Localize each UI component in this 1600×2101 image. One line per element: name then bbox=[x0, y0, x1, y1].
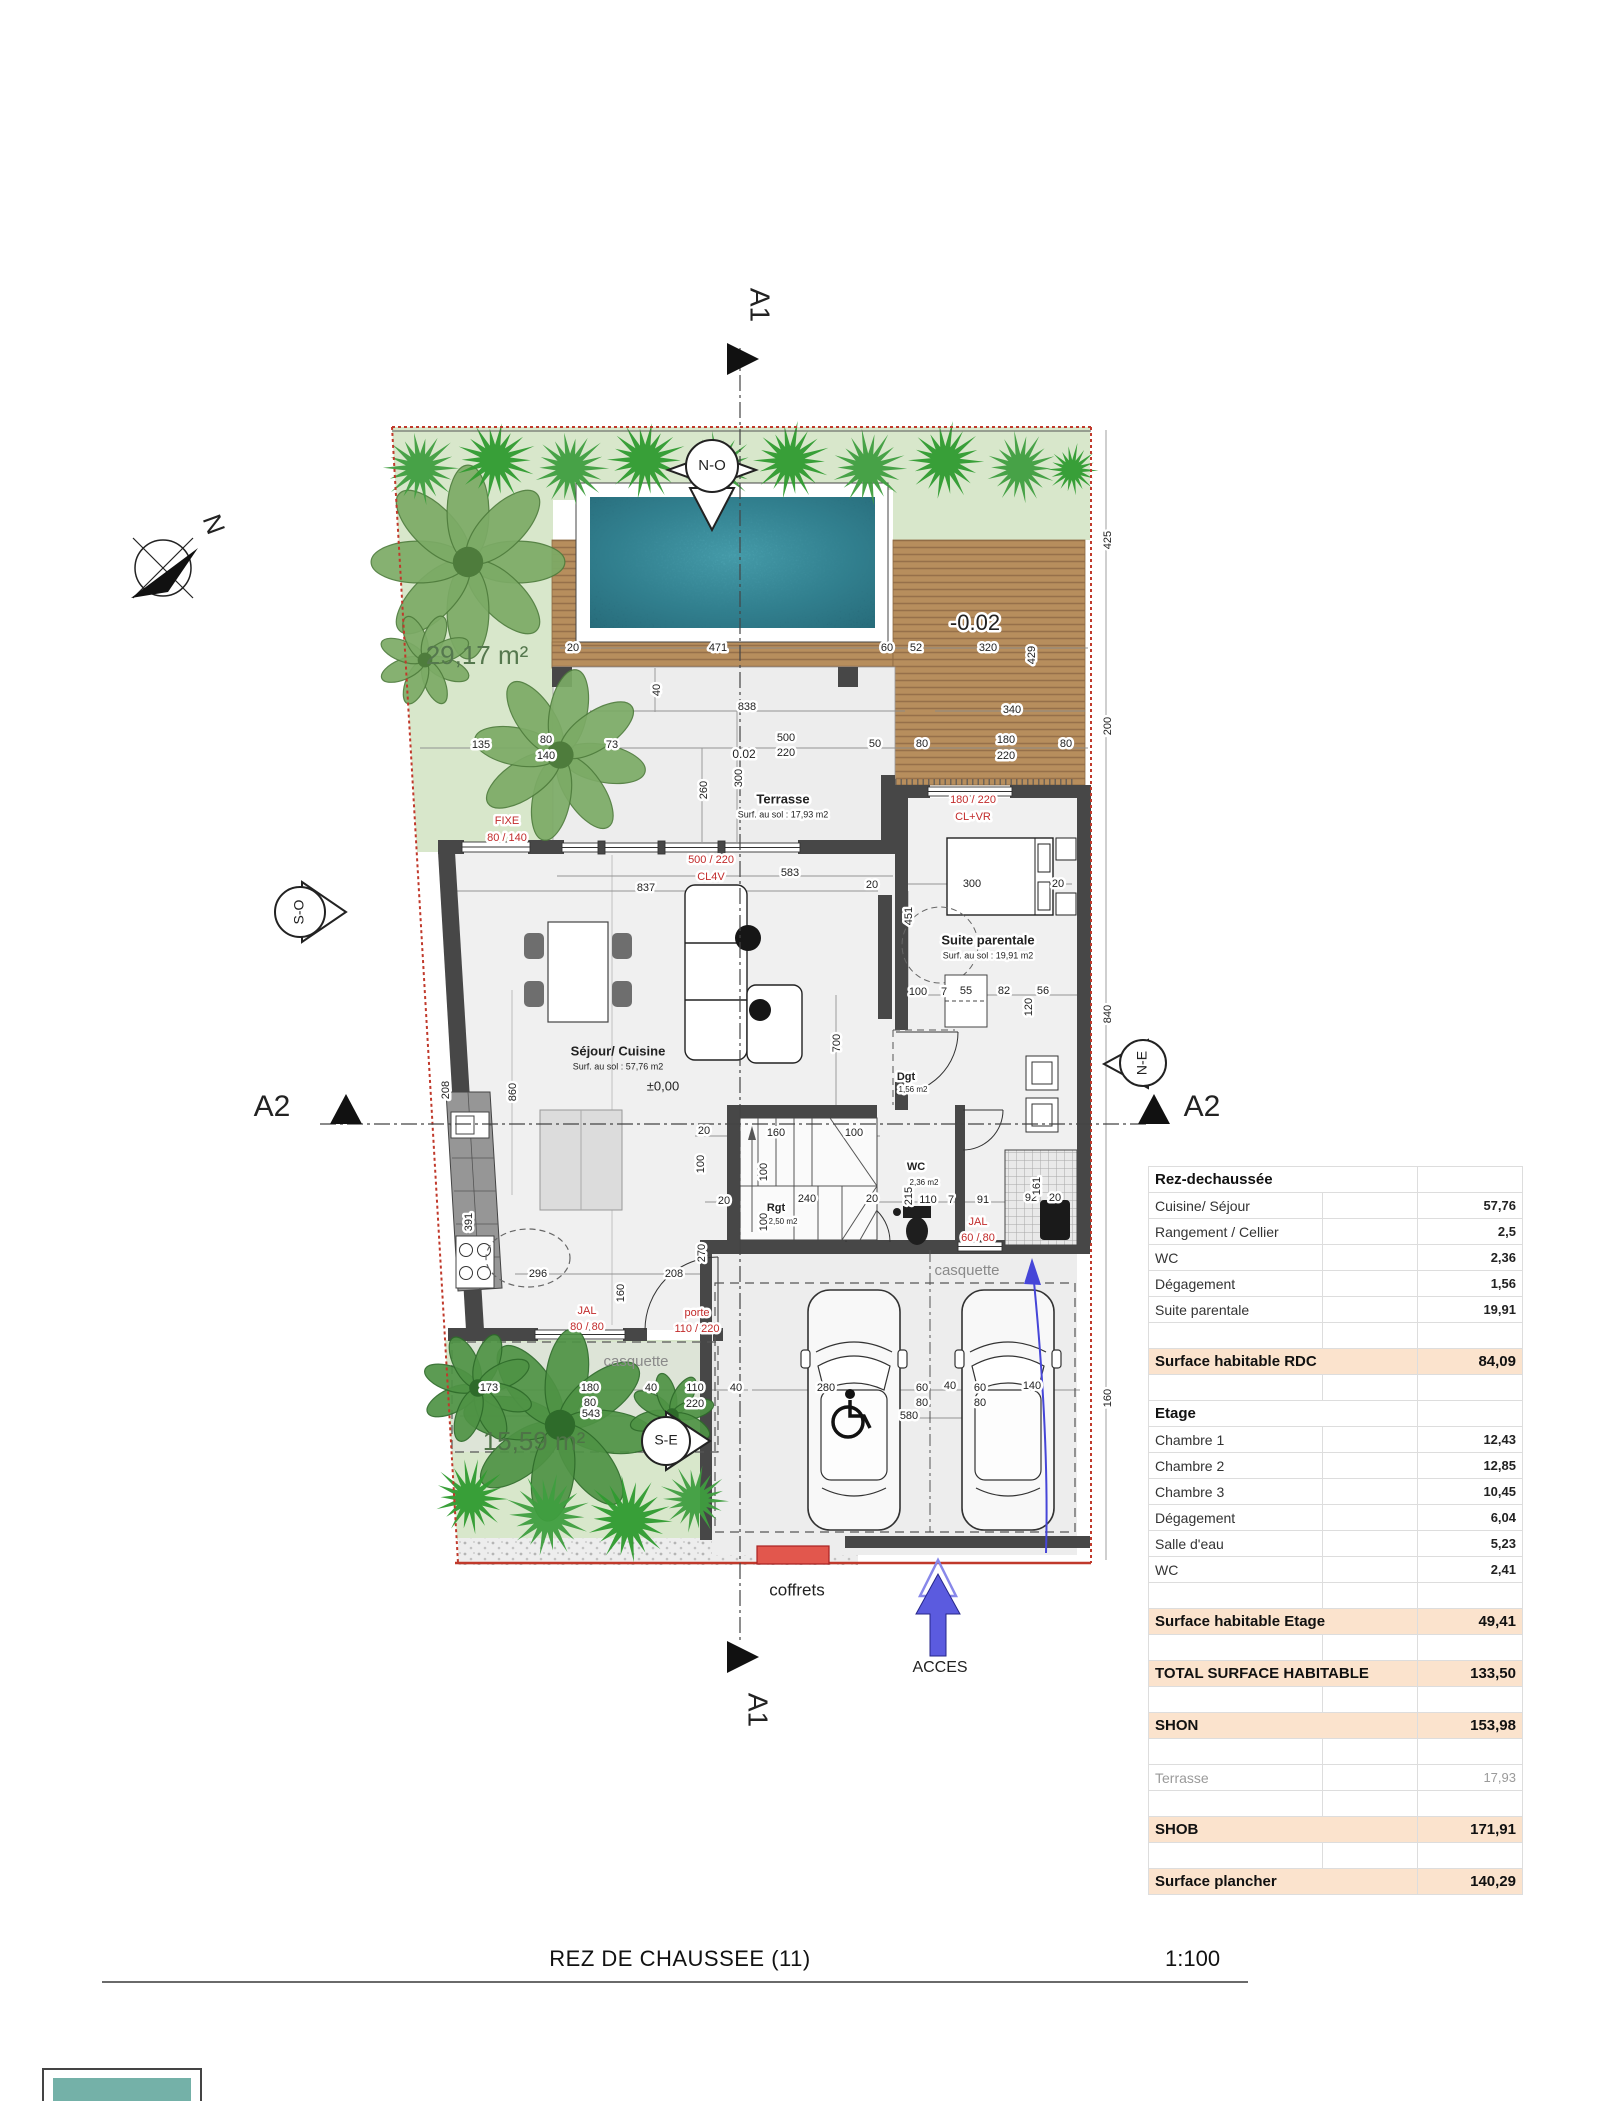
table-label: SHOB bbox=[1149, 1817, 1418, 1843]
table-label bbox=[1323, 1739, 1418, 1765]
plan-label: 160 bbox=[1102, 1389, 1114, 1407]
plan-label: 20 bbox=[1052, 878, 1064, 890]
table-label bbox=[1323, 1583, 1418, 1609]
plan-label: 860 bbox=[507, 1083, 519, 1101]
plan-label: 80 bbox=[916, 738, 928, 750]
plan-label: 91 bbox=[977, 1194, 989, 1206]
table-label: Chambre 2 bbox=[1149, 1453, 1323, 1479]
table-label bbox=[1323, 1557, 1418, 1583]
table-value: 1,56 bbox=[1418, 1271, 1523, 1297]
table-label bbox=[1323, 1453, 1418, 1479]
plan-label: 200 bbox=[1102, 717, 1114, 735]
table-value: 6,04 bbox=[1418, 1505, 1523, 1531]
plan-label: 320 bbox=[979, 642, 997, 654]
table-value: 133,50 bbox=[1418, 1661, 1523, 1687]
plan-label: 500 / 220 bbox=[688, 854, 734, 866]
plan-label: 300 bbox=[963, 878, 981, 890]
plan-label: 7 bbox=[941, 986, 947, 998]
access-arrow bbox=[916, 1574, 960, 1656]
plan-label: 180 / 220 bbox=[950, 794, 996, 806]
table-value: 171,91 bbox=[1418, 1817, 1523, 1843]
table-row: Chambre 212,85 bbox=[1149, 1453, 1523, 1479]
table-label: Chambre 1 bbox=[1149, 1427, 1323, 1453]
table-label bbox=[1149, 1739, 1323, 1765]
table-label bbox=[1149, 1635, 1323, 1661]
sheet-scale: 1:100 bbox=[1165, 1946, 1255, 1972]
plan-label: 50 bbox=[869, 738, 881, 750]
plan-label: Terrasse bbox=[756, 791, 809, 806]
compass-icon bbox=[131, 538, 198, 598]
table-label: Chambre 3 bbox=[1149, 1479, 1323, 1505]
plan-label: 425 bbox=[1102, 531, 1114, 549]
table-label: Surface plancher bbox=[1149, 1869, 1418, 1895]
table-row bbox=[1149, 1687, 1523, 1713]
table-row: Suite parentale19,91 bbox=[1149, 1297, 1523, 1323]
table-row bbox=[1149, 1323, 1523, 1349]
plan-label: 1,56 m2 bbox=[899, 1085, 928, 1094]
table-label bbox=[1323, 1245, 1418, 1271]
table-label bbox=[1418, 1583, 1523, 1609]
plan-label: 2,50 m2 bbox=[769, 1217, 798, 1226]
table-label: Dégagement bbox=[1149, 1271, 1323, 1297]
sheet-title: REZ DE CHAUSSEE (11) bbox=[380, 1946, 980, 1972]
plan-label: A1 bbox=[745, 288, 776, 322]
table-value: 17,93 bbox=[1418, 1765, 1523, 1791]
table-label: Rez-dechaussée bbox=[1149, 1167, 1418, 1193]
plan-label: A1 bbox=[743, 1693, 774, 1727]
tree-center bbox=[453, 547, 483, 577]
plan-label: 838 bbox=[738, 701, 756, 713]
table-row: WC2,41 bbox=[1149, 1557, 1523, 1583]
plan-label: 100 bbox=[695, 1155, 707, 1173]
plan-label: Rgt bbox=[767, 1202, 786, 1214]
table-value: 2,5 bbox=[1418, 1219, 1523, 1245]
plan-label: 40 bbox=[651, 684, 663, 696]
plan-label: 20 bbox=[698, 1125, 710, 1137]
table-value: 5,23 bbox=[1418, 1531, 1523, 1557]
table-row: TOTAL SURFACE HABITABLE133,50 bbox=[1149, 1661, 1523, 1687]
plan-label: 56 bbox=[1037, 985, 1049, 997]
plan-label: 20 bbox=[866, 879, 878, 891]
table-label: Terrasse bbox=[1149, 1765, 1323, 1791]
plan-label: 110 / 220 bbox=[674, 1323, 719, 1335]
plan-sheet: A1A1A2A2NN-OS-ON-ES-ETerrasseSurf. au so… bbox=[0, 0, 1600, 2101]
table-label bbox=[1323, 1479, 1418, 1505]
table-row: SHOB171,91 bbox=[1149, 1817, 1523, 1843]
plan-label: porte bbox=[684, 1307, 709, 1319]
plan-label: 583 bbox=[781, 867, 799, 879]
table-label bbox=[1418, 1323, 1523, 1349]
plan-label: 82 bbox=[998, 985, 1010, 997]
table-value: 57,76 bbox=[1418, 1193, 1523, 1219]
table-label bbox=[1323, 1193, 1418, 1219]
plant-pot bbox=[735, 925, 761, 951]
plan-label: WC bbox=[907, 1161, 925, 1173]
plan-label: 220 bbox=[686, 1398, 704, 1410]
plant-pot bbox=[749, 999, 771, 1021]
plan-label: CL4V bbox=[697, 871, 725, 883]
plan-label: N bbox=[197, 510, 232, 538]
table-label bbox=[1418, 1843, 1523, 1869]
plan-label: 208 bbox=[440, 1081, 452, 1099]
plan-label: JAL bbox=[969, 1216, 988, 1228]
plan-label: 300 bbox=[733, 769, 745, 787]
plan-label: 161 bbox=[1031, 1177, 1043, 1195]
table-row: Rangement / Cellier2,5 bbox=[1149, 1219, 1523, 1245]
plan-label: 220 bbox=[997, 750, 1015, 762]
table-label: Rangement / Cellier bbox=[1149, 1219, 1323, 1245]
plan-label: A2 bbox=[254, 1090, 291, 1123]
table-label: Surface habitable RDC bbox=[1149, 1349, 1418, 1375]
table-label: Suite parentale bbox=[1149, 1297, 1323, 1323]
plan-label: 270 bbox=[696, 1244, 708, 1262]
table-label bbox=[1418, 1739, 1523, 1765]
plan-label: 80 / 80 bbox=[570, 1321, 604, 1333]
company-logo bbox=[42, 2068, 202, 2101]
plan-label: 471 bbox=[709, 642, 727, 654]
plan-label: 40 bbox=[944, 1380, 956, 1392]
table-value: 2,41 bbox=[1418, 1557, 1523, 1583]
plan-label: 52 bbox=[910, 642, 922, 654]
table-label bbox=[1323, 1687, 1418, 1713]
marker-so-icon bbox=[275, 882, 346, 942]
plan-label: 29,17 m² bbox=[426, 640, 529, 670]
table-row: Salle d'eau5,23 bbox=[1149, 1531, 1523, 1557]
plan-label: 7 bbox=[948, 1194, 954, 1206]
table-value: 140,29 bbox=[1418, 1869, 1523, 1895]
table-value: 10,45 bbox=[1418, 1479, 1523, 1505]
table-label: Dégagement bbox=[1149, 1505, 1323, 1531]
plan-label: 40 bbox=[730, 1382, 742, 1394]
table-value: 12,43 bbox=[1418, 1427, 1523, 1453]
plan-label: 280 bbox=[817, 1382, 835, 1394]
table-label bbox=[1323, 1635, 1418, 1661]
pool bbox=[576, 483, 888, 642]
plan-label: 135 bbox=[472, 739, 490, 751]
table-row: Terrasse17,93 bbox=[1149, 1765, 1523, 1791]
plan-label: 40 bbox=[645, 1382, 657, 1394]
plan-label: A2 bbox=[1184, 1090, 1221, 1123]
plan-label: 215 bbox=[903, 1187, 915, 1205]
plan-label: 160 bbox=[767, 1127, 785, 1139]
table-label bbox=[1323, 1427, 1418, 1453]
plan-label: 208 bbox=[665, 1268, 683, 1280]
coffrets-box bbox=[757, 1546, 829, 1564]
table-label bbox=[1323, 1297, 1418, 1323]
plan-label: 543 bbox=[582, 1408, 600, 1420]
table-label bbox=[1418, 1791, 1523, 1817]
plan-label: 20 bbox=[567, 642, 579, 654]
shower-fixture bbox=[1040, 1200, 1070, 1240]
table-value bbox=[1418, 1401, 1523, 1427]
table-label bbox=[1323, 1791, 1418, 1817]
plan-label: 100 bbox=[758, 1163, 770, 1181]
plan-label: 15,59 m² bbox=[483, 1426, 586, 1456]
table-row: Dégagement1,56 bbox=[1149, 1271, 1523, 1297]
table-label bbox=[1323, 1843, 1418, 1869]
plan-label: CL+VR bbox=[955, 811, 991, 823]
table-label bbox=[1418, 1375, 1523, 1401]
plan-label: ±0,00 bbox=[647, 1078, 679, 1093]
plan-label: 110 bbox=[919, 1194, 937, 1206]
plan-label: 140 bbox=[537, 750, 555, 762]
plan-label: 173 bbox=[480, 1382, 498, 1394]
plan-label: FIXE bbox=[495, 815, 519, 827]
table-label bbox=[1149, 1583, 1323, 1609]
table-value: 19,91 bbox=[1418, 1297, 1523, 1323]
plan-label: 60 bbox=[881, 642, 893, 654]
table-value: 49,41 bbox=[1418, 1609, 1523, 1635]
table-label: Salle d'eau bbox=[1149, 1531, 1323, 1557]
table-row: Surface plancher140,29 bbox=[1149, 1869, 1523, 1895]
table-row: WC2,36 bbox=[1149, 1245, 1523, 1271]
table-row: Surface habitable Etage49,41 bbox=[1149, 1609, 1523, 1635]
plan-label: N-O bbox=[698, 457, 726, 474]
table-label bbox=[1149, 1687, 1323, 1713]
table-value: 84,09 bbox=[1418, 1349, 1523, 1375]
table-value bbox=[1418, 1167, 1523, 1193]
table-row: Surface habitable RDC84,09 bbox=[1149, 1349, 1523, 1375]
plan-label: 60 bbox=[974, 1382, 986, 1394]
plan-label: 429 bbox=[1026, 646, 1038, 664]
table-label bbox=[1323, 1323, 1418, 1349]
table-label: SHON bbox=[1149, 1713, 1418, 1739]
table-row: Dégagement6,04 bbox=[1149, 1505, 1523, 1531]
plan-label: 60 bbox=[916, 1382, 928, 1394]
plan-label: 20 bbox=[1049, 1192, 1061, 1204]
table-row: Chambre 112,43 bbox=[1149, 1427, 1523, 1453]
plan-label: Surf. au sol : 19,91 m2 bbox=[943, 950, 1034, 960]
plan-label: 73 bbox=[606, 739, 618, 751]
dining-table bbox=[548, 922, 608, 1022]
plan-label: 80 / 140 bbox=[487, 832, 527, 844]
table-row bbox=[1149, 1583, 1523, 1609]
plan-label: N-E bbox=[1134, 1051, 1150, 1075]
table-label bbox=[1418, 1687, 1523, 1713]
table-label bbox=[1323, 1505, 1418, 1531]
surface-summary-panel: Rez-dechausséeCuisine/ Séjour57,76Rangem… bbox=[1148, 1166, 1524, 1895]
table-row bbox=[1149, 1375, 1523, 1401]
plan-label: 140 bbox=[1023, 1380, 1041, 1392]
logo-background bbox=[53, 2078, 191, 2101]
plan-label: Surf. au sol : 17,93 m2 bbox=[738, 809, 829, 819]
table-row: SHON153,98 bbox=[1149, 1713, 1523, 1739]
table-label: WC bbox=[1149, 1245, 1323, 1271]
plan-label: casquette bbox=[934, 1262, 999, 1279]
plan-label: Dgt bbox=[897, 1071, 916, 1083]
table-row: Rez-dechaussée bbox=[1149, 1167, 1523, 1193]
table-row bbox=[1149, 1739, 1523, 1765]
section-arrow-a1-top bbox=[727, 343, 759, 375]
table-row: Etage bbox=[1149, 1401, 1523, 1427]
table-label: Cuisine/ Séjour bbox=[1149, 1193, 1323, 1219]
table-label bbox=[1149, 1375, 1323, 1401]
car-right bbox=[955, 1290, 1061, 1530]
plan-label: 240 bbox=[798, 1193, 816, 1205]
plan-label: 160 bbox=[615, 1284, 627, 1302]
title-rule bbox=[102, 1981, 1248, 1983]
plan-label: 0.02 bbox=[732, 747, 756, 761]
table-label bbox=[1149, 1323, 1323, 1349]
plan-label: 837 bbox=[637, 882, 655, 894]
plan-label: 451 bbox=[903, 907, 915, 925]
table-label bbox=[1149, 1843, 1323, 1869]
table-label: Surface habitable Etage bbox=[1149, 1609, 1418, 1635]
table-label bbox=[1323, 1271, 1418, 1297]
section-arrow-a2-right bbox=[1138, 1094, 1170, 1124]
plan-label: 20 bbox=[718, 1195, 730, 1207]
table-label bbox=[1149, 1791, 1323, 1817]
plan-label: Surf. au sol : 57,76 m2 bbox=[573, 1061, 664, 1071]
plan-label: S-E bbox=[654, 1432, 677, 1448]
table-label bbox=[1418, 1635, 1523, 1661]
plan-label: 391 bbox=[463, 1213, 475, 1231]
plan-label: 100 bbox=[909, 986, 927, 998]
table-label: Etage bbox=[1149, 1401, 1418, 1427]
plan-label: 180 bbox=[581, 1382, 599, 1394]
plan-label: casquette bbox=[603, 1353, 668, 1370]
plan-label: 296 bbox=[529, 1268, 547, 1280]
section-arrow-a1-bottom bbox=[727, 1641, 759, 1673]
plan-label: 120 bbox=[1023, 998, 1035, 1016]
table-row bbox=[1149, 1791, 1523, 1817]
table-row: Cuisine/ Séjour57,76 bbox=[1149, 1193, 1523, 1219]
plan-label: 340 bbox=[1003, 704, 1021, 716]
section-arrow-a2-left bbox=[330, 1094, 362, 1124]
table-label bbox=[1323, 1375, 1418, 1401]
plan-label: 80 bbox=[974, 1397, 986, 1409]
plan-label: 500 bbox=[777, 732, 795, 744]
plan-label: 80 bbox=[1060, 738, 1072, 750]
plan-label: 20 bbox=[866, 1193, 878, 1205]
plan-label: Suite parentale bbox=[941, 932, 1034, 947]
plan-label: 580 bbox=[900, 1410, 918, 1422]
plan-label: -0.02 bbox=[950, 610, 1000, 635]
stove bbox=[456, 1236, 494, 1288]
plan-label: 80 bbox=[540, 734, 552, 746]
plan-label: 55 bbox=[960, 985, 972, 997]
plan-label: coffrets bbox=[769, 1580, 824, 1599]
plan-label: S-O bbox=[291, 899, 307, 924]
plan-label: 840 bbox=[1102, 1005, 1114, 1023]
surface-table: Rez-dechausséeCuisine/ Séjour57,76Rangem… bbox=[1148, 1166, 1523, 1895]
table-label bbox=[1323, 1531, 1418, 1557]
plan-label: 260 bbox=[698, 781, 710, 799]
plan-label: 700 bbox=[831, 1034, 843, 1052]
plan-label: 80 bbox=[916, 1397, 928, 1409]
table-value: 2,36 bbox=[1418, 1245, 1523, 1271]
table-label bbox=[1323, 1219, 1418, 1245]
table-row bbox=[1149, 1635, 1523, 1661]
table-label: WC bbox=[1149, 1557, 1323, 1583]
plan-label: 110 bbox=[686, 1382, 704, 1394]
table-value: 12,85 bbox=[1418, 1453, 1523, 1479]
plan-label: 180 bbox=[997, 734, 1015, 746]
table-row bbox=[1149, 1843, 1523, 1869]
table-value: 153,98 bbox=[1418, 1713, 1523, 1739]
table-row: Chambre 310,45 bbox=[1149, 1479, 1523, 1505]
plan-label: 2,36 m2 bbox=[910, 1178, 939, 1187]
plan-label: 100 bbox=[758, 1213, 770, 1231]
plan-label: JAL bbox=[578, 1305, 597, 1317]
table-label bbox=[1323, 1765, 1418, 1791]
plan-label: Séjour/ Cuisine bbox=[571, 1043, 666, 1058]
plan-label: 100 bbox=[845, 1127, 863, 1139]
table-label: TOTAL SURFACE HABITABLE bbox=[1149, 1661, 1418, 1687]
plan-label: ACCES bbox=[912, 1659, 967, 1676]
plan-label: 220 bbox=[777, 747, 795, 759]
plan-label: 60 / 80 bbox=[961, 1232, 995, 1244]
